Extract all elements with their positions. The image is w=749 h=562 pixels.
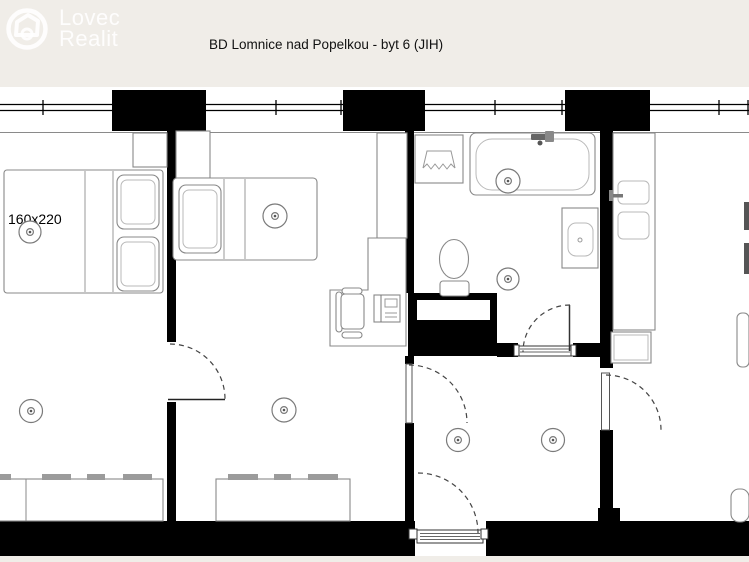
washbasin bbox=[562, 208, 598, 268]
plan-title: BD Lomnice nad Popelkou - byt 6 (JIH) bbox=[209, 37, 443, 52]
ceiling-light bbox=[496, 169, 520, 193]
ceiling-light bbox=[19, 221, 41, 243]
logo-line1: Lovec bbox=[59, 7, 120, 28]
edge-furniture bbox=[744, 202, 749, 230]
logo-line2: Realit bbox=[59, 28, 120, 49]
pillow bbox=[179, 185, 221, 253]
chair-partial bbox=[737, 313, 749, 367]
computer bbox=[374, 295, 400, 322]
wall-niche bbox=[417, 300, 490, 320]
washing-machine bbox=[415, 135, 463, 183]
wardrobe bbox=[377, 133, 407, 238]
ceiling-light bbox=[447, 429, 470, 452]
chair-partial bbox=[731, 489, 749, 522]
wall-door-jamb bbox=[405, 356, 414, 364]
radiator bbox=[0, 479, 163, 521]
wall-pier bbox=[565, 90, 650, 131]
lovec-realit-logo-icon bbox=[4, 3, 50, 53]
wall-junction bbox=[598, 508, 620, 521]
door-threshold bbox=[517, 346, 573, 356]
wall-hall-west bbox=[405, 423, 414, 521]
radiator bbox=[216, 479, 350, 521]
door-leaf bbox=[602, 373, 610, 430]
floorplan: 160x220 bbox=[0, 0, 749, 562]
toilet bbox=[440, 240, 470, 297]
bathtub bbox=[470, 133, 595, 195]
wall-pier bbox=[112, 90, 206, 131]
wall-south bbox=[0, 521, 415, 556]
radiator-brackets bbox=[228, 474, 338, 480]
ceiling-light bbox=[272, 398, 296, 422]
door-leaf bbox=[406, 364, 412, 423]
ceiling-light bbox=[497, 268, 519, 290]
wall-pier bbox=[343, 90, 425, 131]
wall-bedroom1-bedroom2 bbox=[167, 402, 176, 521]
ceiling-light bbox=[542, 429, 565, 452]
edge-furniture bbox=[744, 243, 749, 274]
closet bbox=[176, 131, 210, 178]
closet bbox=[133, 133, 167, 167]
pillow bbox=[117, 237, 159, 291]
lovec-realit-logo: Lovec Realit bbox=[4, 3, 120, 53]
wall-kitchen-west bbox=[600, 430, 613, 521]
ceiling-light bbox=[263, 204, 287, 228]
logo-text: Lovec Realit bbox=[59, 7, 120, 49]
appliance bbox=[611, 332, 651, 363]
pillow bbox=[117, 175, 159, 229]
ceiling-light bbox=[20, 400, 43, 423]
wall-south bbox=[486, 521, 749, 556]
wall-hall-north bbox=[573, 343, 602, 357]
